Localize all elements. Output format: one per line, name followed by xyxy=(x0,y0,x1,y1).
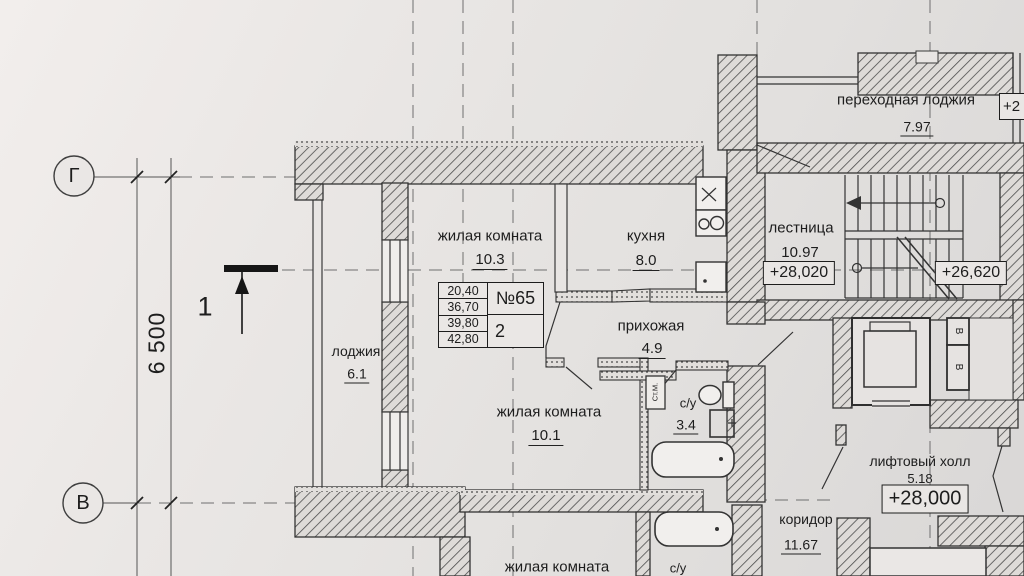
apartment-number: №65 xyxy=(488,283,543,315)
room-living-bottom-name: жилая комната xyxy=(497,405,602,420)
appliance-icon xyxy=(696,262,726,292)
kitchen-sink-icon xyxy=(696,177,726,210)
vent-shaft-bottom-label: В xyxy=(953,364,963,371)
apartment-areas-table: 20,40 36,70 39,80 42,80 xyxy=(439,283,488,347)
room-stairs-name: лестница xyxy=(768,221,833,236)
elevation-floor: +28,000 xyxy=(882,485,969,514)
floor-plan-photo: Г В 6 500 1 жилая комната 10.3 кухня 8.0… xyxy=(0,0,1024,576)
washing-machine-label: Ст.М. xyxy=(651,383,659,401)
room-corridor-name: коридор xyxy=(779,512,832,526)
elevation-stair-upper: +28,020 xyxy=(763,261,835,285)
room-corridor-area: 11.67 xyxy=(781,538,821,555)
room-bathroom-name: с/у xyxy=(680,397,697,410)
section-mark-label: 1 xyxy=(197,294,212,321)
apartment-area-1: 36,70 xyxy=(439,299,487,315)
room-loggia-area: 6.1 xyxy=(344,367,369,384)
dimension-label: 6 500 xyxy=(146,312,169,375)
room-bathroom-area: 3.4 xyxy=(673,418,698,435)
apartment-rooms-count: 2 xyxy=(488,315,543,347)
elevation-stair-lower: +26,620 xyxy=(935,261,1007,285)
room-kitchen-area: 8.0 xyxy=(633,253,660,271)
apartment-area-living: 20,40 xyxy=(439,283,487,299)
loggia-outer-wall xyxy=(313,183,322,487)
bathtub-lower-icon xyxy=(655,512,733,546)
vent-shaft-top-label: В xyxy=(953,328,963,335)
room-loggia-name: лоджия xyxy=(332,344,381,358)
room-living-bottom-area: 10.1 xyxy=(528,428,563,446)
room-transfer-loggia-name: переходная лоджия xyxy=(837,93,975,108)
apartment-area-total: 42,80 xyxy=(439,332,487,347)
room-kitchen-name: кухня xyxy=(627,229,665,244)
room-hallway-name: прихожая xyxy=(618,319,685,334)
room-lower-bathroom-name: с/у xyxy=(670,562,687,575)
room-living-top-area: 10.3 xyxy=(472,252,507,270)
room-living-top-name: жилая комната xyxy=(438,229,543,244)
room-lift-hall-name: лифтовый холл xyxy=(869,454,970,468)
room-transfer-loggia-area: 7.97 xyxy=(900,120,933,137)
room-lower-living-name: жилая комната xyxy=(505,560,610,575)
elevation-edge-partial: +2 xyxy=(999,93,1024,120)
grid-axis-top: Г xyxy=(69,166,80,186)
room-hallway-area: 4.9 xyxy=(639,341,666,359)
apartment-info-box: 20,40 36,70 39,80 42,80 №65 2 xyxy=(438,282,544,348)
grid-axis-bottom: В xyxy=(76,493,89,513)
toilet-icon xyxy=(699,386,721,405)
kitchen-fixtures xyxy=(696,177,726,292)
apartment-area-2: 39,80 xyxy=(439,316,487,332)
